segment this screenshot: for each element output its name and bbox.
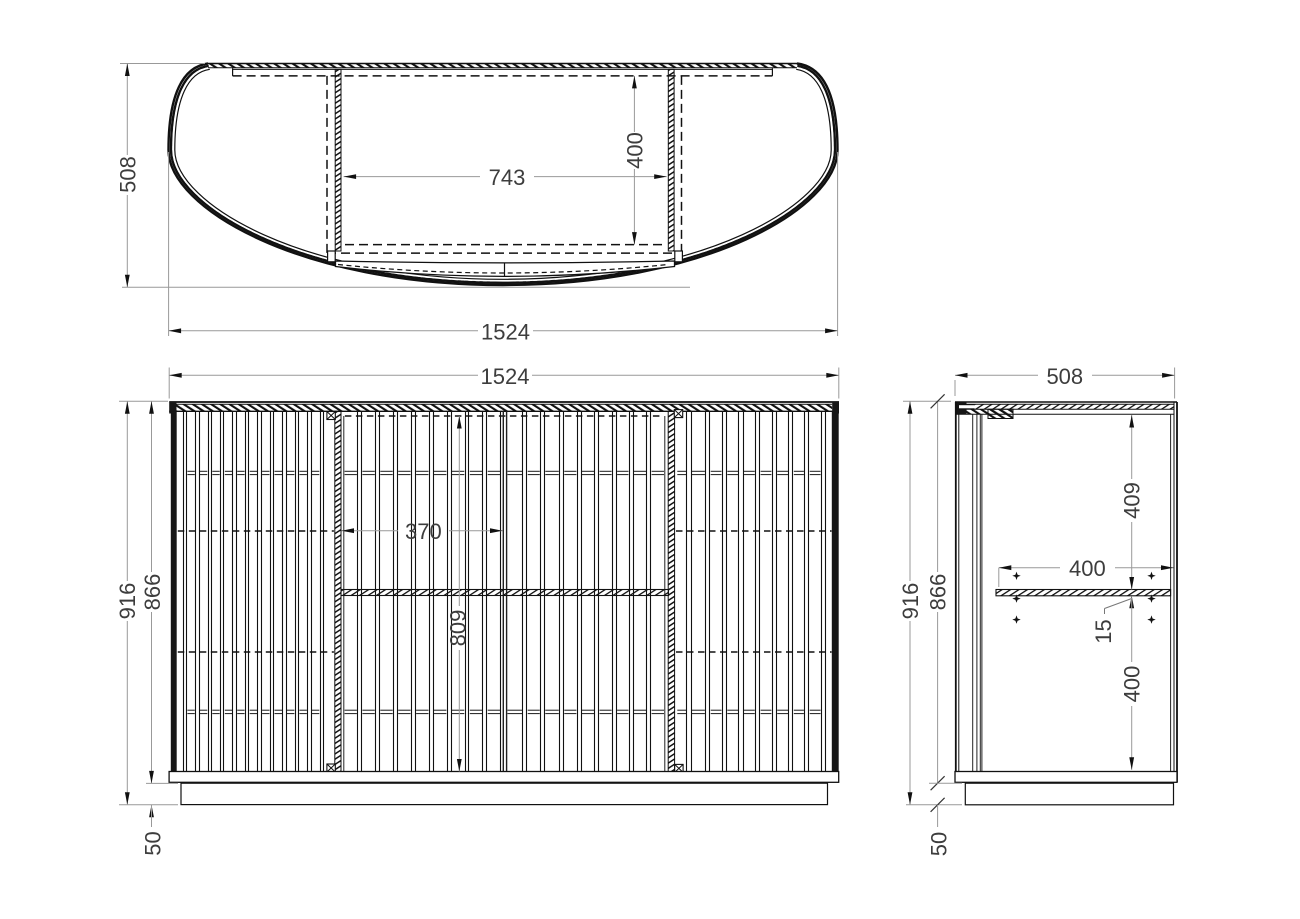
svg-text:508: 508	[115, 156, 140, 193]
svg-text:370: 370	[405, 519, 442, 544]
svg-text:1524: 1524	[481, 364, 530, 389]
svg-text:400: 400	[1119, 666, 1144, 703]
svg-text:400: 400	[622, 132, 647, 169]
svg-text:866: 866	[926, 574, 951, 611]
svg-text:916: 916	[115, 583, 140, 620]
svg-text:866: 866	[140, 574, 165, 611]
svg-text:508: 508	[1046, 364, 1083, 389]
svg-text:1524: 1524	[481, 319, 530, 344]
svg-text:400: 400	[1069, 556, 1106, 581]
svg-text:916: 916	[898, 583, 923, 620]
svg-text:15: 15	[1091, 619, 1116, 643]
svg-text:409: 409	[1119, 482, 1144, 519]
svg-text:50: 50	[141, 831, 166, 855]
svg-text:50: 50	[926, 832, 951, 856]
svg-text:809: 809	[445, 610, 470, 647]
svg-text:743: 743	[489, 165, 526, 190]
